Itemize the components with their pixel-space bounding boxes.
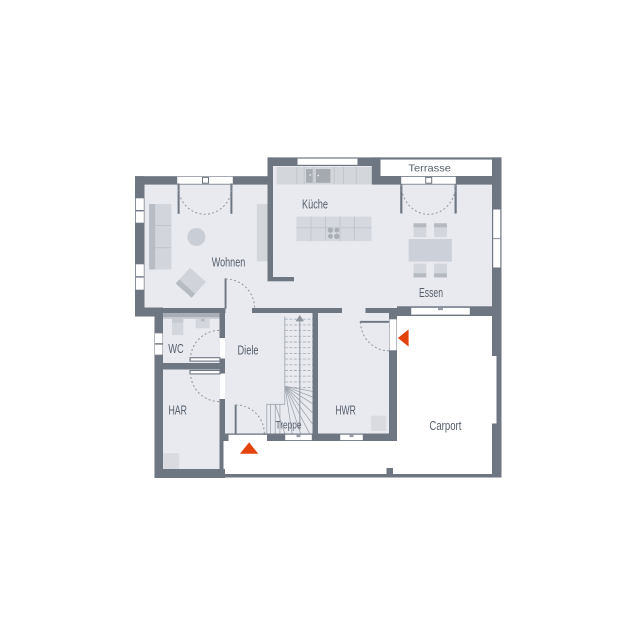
svg-text:HWR: HWR: [335, 403, 356, 417]
svg-text:Wohnen: Wohnen: [212, 256, 246, 270]
svg-text:Terrasse: Terrasse: [408, 162, 451, 174]
svg-text:Carport: Carport: [429, 419, 461, 433]
svg-text:Diele: Diele: [238, 343, 259, 357]
svg-text:Küche: Küche: [302, 197, 328, 211]
svg-text:Treppe: Treppe: [276, 420, 302, 432]
svg-text:Essen: Essen: [419, 286, 443, 300]
svg-text:HAR: HAR: [168, 403, 187, 417]
svg-text:WC: WC: [168, 342, 184, 356]
